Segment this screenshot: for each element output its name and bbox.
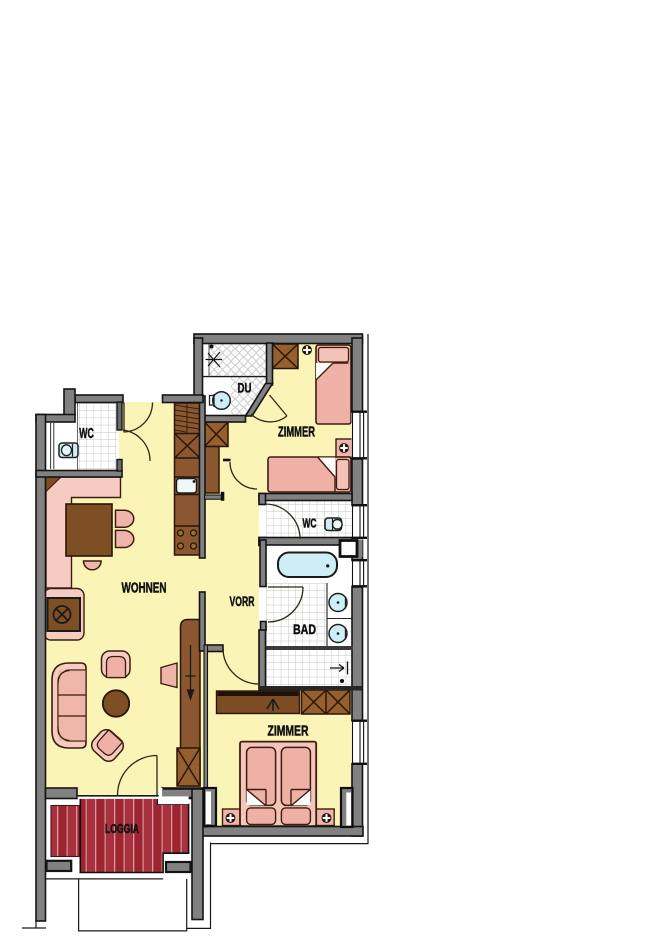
- svg-text:WOHNEN: WOHNEN: [122, 581, 167, 597]
- svg-text:BAD: BAD: [293, 622, 316, 637]
- svg-text:DU: DU: [238, 381, 252, 396]
- svg-text:VORR: VORR: [230, 594, 255, 609]
- svg-text:ZIMMER: ZIMMER: [278, 425, 315, 441]
- svg-text:WC: WC: [303, 516, 317, 531]
- svg-text:ZIMMER: ZIMMER: [268, 724, 309, 740]
- svg-text:LOGGIA: LOGGIA: [105, 822, 139, 836]
- svg-text:WC: WC: [79, 426, 94, 442]
